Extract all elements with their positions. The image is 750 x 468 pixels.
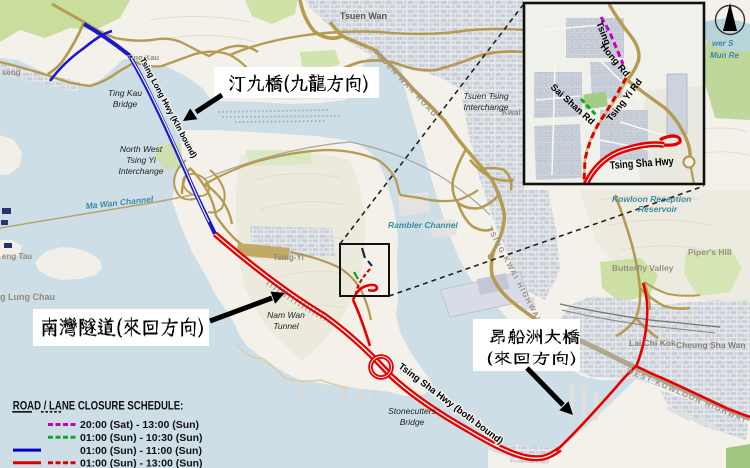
svg-text:Stonecutters: Stonecutters: [388, 406, 436, 416]
svg-text:Tsing-Yi: Tsing-Yi: [273, 253, 304, 262]
svg-text:Bridge: Bridge: [113, 99, 138, 109]
svg-text:Bridge: Bridge: [400, 417, 425, 427]
svg-text:Rambler Channel: Rambler Channel: [388, 220, 459, 230]
svg-text:Tunnel: Tunnel: [273, 321, 299, 331]
svg-text:Butterfly Valley: Butterfly Valley: [612, 263, 674, 273]
svg-text:Nam Wan: Nam Wan: [267, 310, 305, 320]
svg-text:01:00 (Sun) - 10:30 (Sun): 01:00 (Sun) - 10:30 (Sun): [80, 432, 203, 444]
svg-text:Mun Re: Mun Re: [710, 51, 739, 60]
svg-text:Tsuen Tsing: Tsuen Tsing: [463, 91, 508, 101]
svg-text:Reservoir: Reservoir: [638, 204, 678, 214]
svg-text:Cheung Sha Wan: Cheung Sha Wan: [676, 340, 746, 350]
svg-text:ROAD / LANE CLOSURE SCHEDULE:: ROAD / LANE CLOSURE SCHEDULE:: [13, 399, 184, 412]
svg-text:Tsing Yi: Tsing Yi: [126, 155, 157, 165]
svg-text:01:00 (Sun) - 13:00 (Sun): 01:00 (Sun) - 13:00 (Sun): [80, 457, 203, 468]
svg-text:Piper's Hill: Piper's Hill: [688, 247, 732, 257]
svg-text:seng: seng: [2, 68, 21, 77]
svg-text:Lai Chi Kok: Lai Chi Kok: [629, 338, 676, 348]
svg-text:North West: North West: [120, 144, 163, 154]
svg-text:Interchange: Interchange: [119, 166, 164, 176]
svg-text:Ting Kau: Ting Kau: [108, 88, 142, 98]
svg-text:Interchange: Interchange: [464, 102, 509, 112]
svg-text:01:00 (Sun) - 11:00 (Sun): 01:00 (Sun) - 11:00 (Sun): [80, 445, 202, 457]
svg-text:wer S: wer S: [712, 39, 734, 48]
svg-text:Tsuen Wan: Tsuen Wan: [340, 11, 387, 21]
svg-text:g Lung Chau: g Lung Chau: [0, 292, 55, 302]
svg-text:Kowloon Reception: Kowloon Reception: [612, 194, 691, 204]
svg-text:20:00 (Sat) - 13:00 (Sun): 20:00 (Sat) - 13:00 (Sun): [80, 419, 199, 431]
svg-text:eng Tau: eng Tau: [2, 252, 32, 261]
